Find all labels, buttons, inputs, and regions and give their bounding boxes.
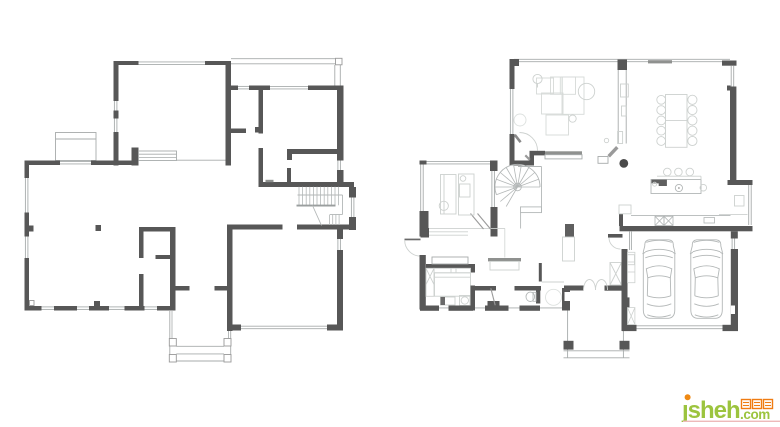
svg-text:.com: .com [740, 407, 770, 422]
